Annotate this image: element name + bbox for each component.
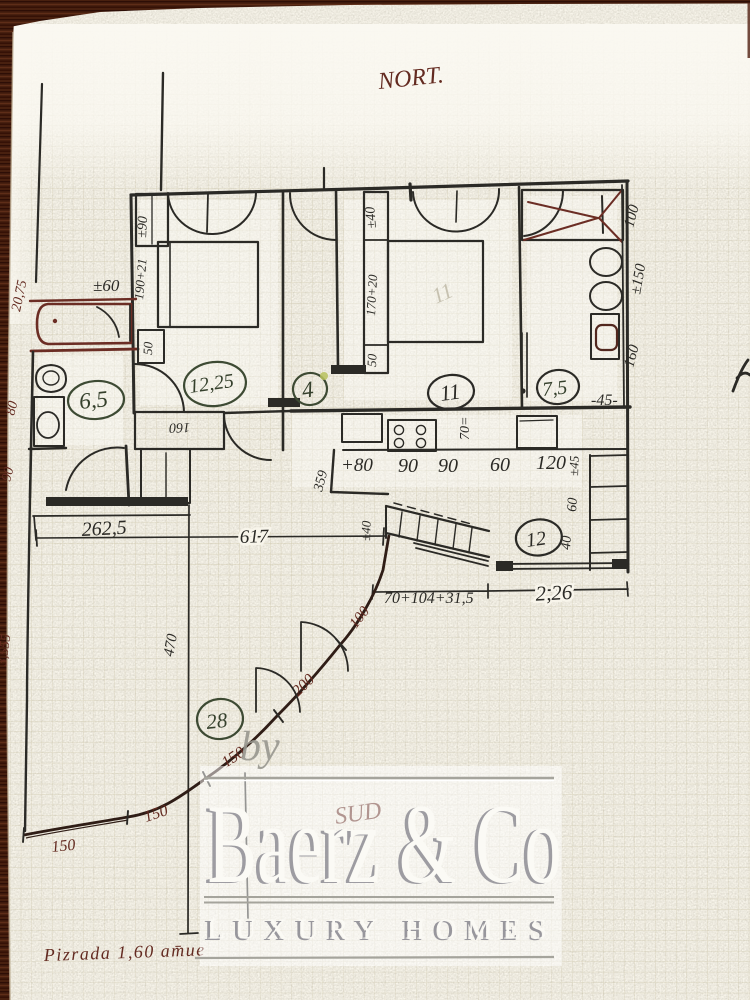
- svg-text:50: 50: [140, 341, 155, 355]
- svg-text:50: 50: [364, 353, 379, 367]
- svg-text:90: 90: [398, 455, 418, 477]
- svg-text:150: 150: [51, 837, 77, 856]
- svg-text:±45: ±45: [566, 455, 582, 476]
- svg-text:60: 60: [565, 497, 581, 512]
- svg-text:60: 60: [490, 454, 510, 476]
- svg-text:±90: ±90: [135, 216, 151, 238]
- svg-text:6,5: 6,5: [78, 386, 109, 414]
- svg-text:7,5: 7,5: [541, 376, 568, 400]
- svg-text:170+20: 170+20: [363, 274, 380, 317]
- svg-text:Baerz & Co: Baerz & Co: [208, 782, 562, 907]
- svg-text:70=: 70=: [458, 417, 473, 440]
- svg-text:by: by: [240, 724, 280, 770]
- svg-text:LUXURY HOMES: LUXURY HOMES: [208, 915, 558, 946]
- svg-text:120: 120: [536, 452, 566, 474]
- svg-text:28: 28: [205, 708, 229, 734]
- svg-text:2,26: 2,26: [535, 580, 573, 606]
- svg-text:70+104+31,5: 70+104+31,5: [384, 590, 474, 607]
- svg-text:160: 160: [169, 419, 191, 435]
- svg-text:617: 617: [239, 526, 270, 548]
- svg-text:11: 11: [438, 378, 462, 406]
- svg-text:±40: ±40: [358, 520, 374, 541]
- svg-text:90: 90: [438, 455, 458, 477]
- svg-text:±60: ±60: [93, 276, 120, 295]
- svg-text:+80: +80: [341, 455, 373, 476]
- svg-text:12: 12: [525, 527, 548, 552]
- svg-text:-45-: -45-: [591, 392, 618, 409]
- svg-text:±40: ±40: [363, 206, 380, 229]
